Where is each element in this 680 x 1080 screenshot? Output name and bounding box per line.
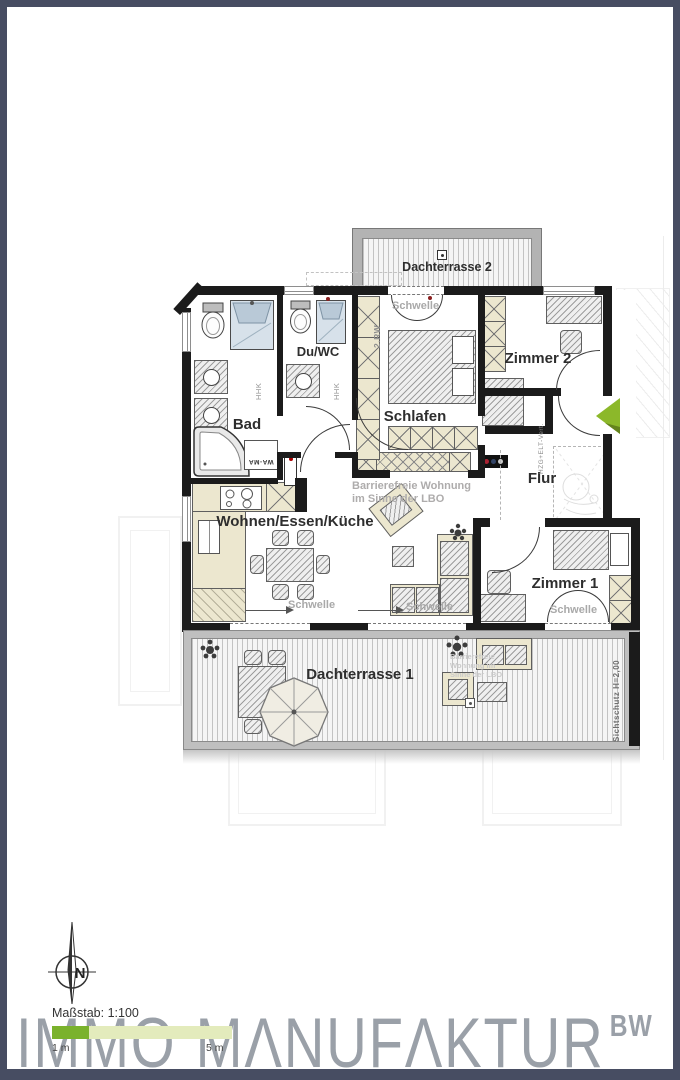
shower-curtain [231,301,273,349]
window [284,286,314,295]
dining-table [266,548,314,582]
neighbor-outline-left-inner [130,530,170,692]
terrace-chair [268,650,286,665]
drain-dot [441,254,444,257]
wall [603,434,612,526]
roof-window-dashed [306,272,402,286]
threshold-note: Schwelle [392,300,439,312]
frame-border-top [0,0,680,7]
terrace-spot [465,698,475,708]
room-label-dachterrasse1: Dachterrasse 1 [290,666,430,683]
nightstand [610,533,629,566]
room-label-zimmer2: Zimmer 2 [498,350,578,367]
threshold-arrow [246,610,286,611]
hhk-note: HHK [254,356,263,400]
wardrobe-cell [454,426,478,450]
parasol-icon [258,676,330,748]
wall [283,452,301,458]
neighbor-line-right [663,236,664,760]
kitchen-corner-cabinet [192,588,246,622]
bed [553,530,609,570]
shower [316,300,346,344]
wardrobe-cell [410,426,433,450]
terrace-chair [244,650,262,665]
wardrobe-cell [482,321,506,347]
wardrobe-cell [482,296,506,322]
wall [545,518,605,527]
scale-bar-5m [89,1026,232,1039]
wall [473,518,481,632]
toilet-icon [288,300,314,334]
stove-burners [221,487,261,509]
window [543,286,595,295]
bed-pillow [452,336,474,364]
stove [220,486,262,510]
wall [485,426,545,434]
plant-icon [198,638,222,662]
wall [295,478,307,512]
frame-border-left [0,0,7,1080]
toilet-icon [199,302,227,340]
wardrobe-cell [609,575,633,601]
bed-pillow [452,368,474,396]
wall [545,396,553,434]
accessibility-note: Barrierefreie Wohnung im Sinne der LBO [352,480,492,506]
dining-chair [250,555,264,574]
washer-label: WA-MA [246,458,276,465]
drawing-sheet: Dachterrasse 2 [0,0,680,1080]
north-arrow-icon: N [44,920,100,1008]
terrace-watermark: Barrierefreie Wohnung im Sinne der LBO [450,652,520,679]
scale-bar-1m [52,1026,89,1039]
shower [230,300,274,350]
dining-chair [272,584,289,600]
threshold-note: Schwelle [288,599,335,611]
threshold-arrow [358,610,396,611]
washer-slot: WA-MA [244,440,278,470]
threshold-arrow-head [396,606,404,614]
coffee-table [392,546,414,567]
dining-chair [297,530,314,546]
sofa-cushion [440,541,469,576]
rw-note: 2.RW [372,304,382,348]
desk [546,296,602,324]
threshold-note: Schwelle [406,601,453,613]
hzg-note: HZG+ELT-Vert. [538,398,545,474]
wall [190,478,278,484]
wall [182,308,191,632]
plant-icon [447,522,469,544]
wall [603,286,612,396]
privacy-screen-note: Sichtschutz H=2,00 [612,640,621,742]
window [182,496,191,542]
entrance-arrow-icon [594,397,622,435]
desk [478,594,526,622]
room-label-zimmer1: Zimmer 1 [525,575,605,592]
wall [352,470,390,478]
sensor-dot [326,297,330,301]
room-label-duwc: Du/WC [280,344,356,359]
threshold-note: Schwelle [550,604,597,616]
dining-chair [316,555,330,574]
scale-tick-1m: 1 m [52,1042,70,1054]
fridge-cabinet [266,482,298,512]
room-label-wohnen: Wohnen/Essen/Küche [212,513,378,530]
flur-dashed-boundary [500,450,501,520]
north-label: N [75,965,86,982]
scale-tick-5m: 5 m [206,1042,224,1054]
wall [478,294,485,416]
frame-border-bottom [0,1069,680,1080]
terrace-door-sill [388,286,444,295]
dining-chair [272,530,289,546]
scale-label: Maßstab: 1:100 [52,1006,139,1020]
wall [478,445,485,478]
room-label-bad: Bad [212,416,282,433]
desk-chair [487,570,511,594]
window [182,312,191,352]
washbasin [286,364,320,398]
terrace-shadow [183,750,640,764]
wall [485,388,553,396]
threshold-arrow-head [286,606,294,614]
wardrobe-cell [432,426,455,450]
hhk-note: HHK [332,356,341,400]
lounge-table [477,682,507,702]
shower-curtain [317,301,345,343]
bed [482,378,524,426]
frame-border-right [673,0,680,1080]
room-label-schlafen: Schlafen [370,408,460,425]
privacy-screen-wall [629,632,640,746]
wall [631,518,640,632]
washbasin [194,360,228,394]
dining-chair [297,584,314,600]
sideboard-end [449,452,471,472]
logo-suffix-bw: BW [610,1009,653,1043]
